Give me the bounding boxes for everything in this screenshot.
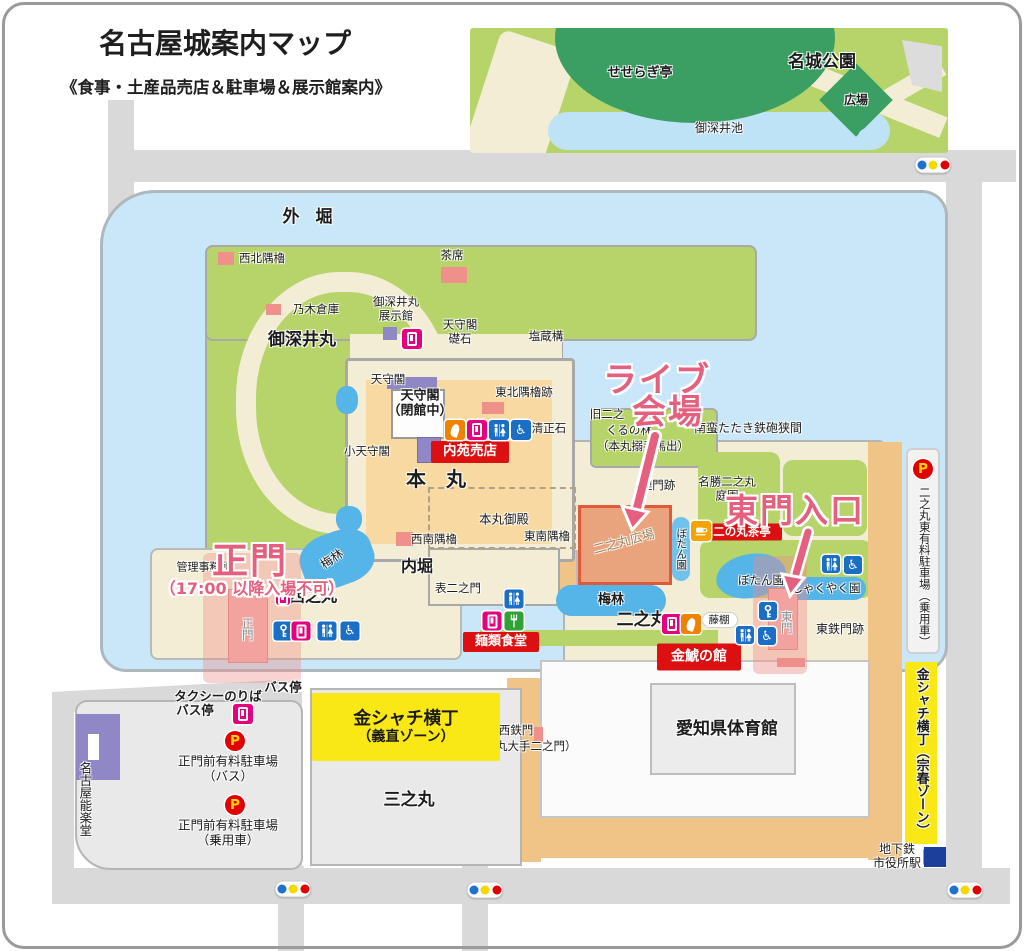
tenshukaku-soseki-label: 天守閣 礎石 [443,318,478,345]
wheelchair-icon: ♿ [511,420,531,440]
restroom-icon [736,626,754,644]
wheelchair-icon: ♿ [758,627,776,645]
botan-en-vertical-label: ぼたん園 [675,528,687,570]
enzogamae-label: 塩蔵構 [529,330,564,344]
main-gate-note-annotation: （17:00 以降入場不可） [160,575,345,599]
parking-icon: P [225,731,245,751]
restroom-icon [489,420,509,440]
naien-baiten-box: 内苑売店 [431,441,509,463]
nagoya-nohgakudo-label: 名古屋能楽堂 [77,762,92,837]
bairin-east-label: 梅林 [598,592,624,607]
live-venue-arrow [608,430,668,538]
east-gate-name-label: 東門 [779,611,793,634]
uchibori-label: 内堀 [401,558,433,577]
park-small-pond [858,128,878,146]
nogi-soko-building [266,304,281,315]
kinshachi-muneharu-label: 金シャチ横丁（宗春ゾーン） [913,668,928,837]
east-inner-road [868,442,902,860]
road-top-horizontal [118,150,1016,182]
nogi-soko-label: 乃木倉庫 [293,303,339,317]
menrui-shokudo-box-text: 麺類食堂 [475,635,527,650]
vending-machine-icon [402,329,422,349]
outer-moat-label: 外 堀 [283,207,338,227]
nohgakudo-notch [88,734,99,760]
menrui-shokudo-box: 麺類食堂 [463,632,539,652]
kiyomasa-ishi-label: 清正石 [532,422,567,436]
main-gate-name-label: 正門 [240,618,254,641]
restroom-icon [318,622,337,641]
ofukemaru-tenjikan-building [383,327,397,340]
road-bottom-vertical-1 [278,866,304,951]
live-venue-annotation-line2: 会場 [632,385,704,434]
kinko-no-yakata-box-text: 金鯱の館 [671,649,727,665]
kinshachi-yoshinao-box-text: （義直ゾーン） [357,729,454,745]
park-forest-circle [555,28,835,123]
higashi-tetsumon-ato-label: 東鉄門跡 [816,622,864,636]
vending-machine-icon [483,612,502,631]
east-gate-annotation: 東門入口 [725,484,865,532]
subway-station-icon [924,848,945,867]
bus-stop-2-label: バス停 [264,681,302,696]
east-gate-arrow [770,526,822,604]
wheelchair-icon: ♿ [341,622,360,641]
ofukemaru-label: 御深井丸 [268,330,336,350]
restaurant-icon [505,612,524,631]
tea-house-icon [691,521,711,541]
traffic-light-icon [947,882,984,899]
honmaru-goten-label: 本丸御殿 [479,513,529,528]
coin-locker-icon [274,622,293,641]
tonan-sumiyagura-label: 東南隅櫓 [524,530,570,544]
traffic-light-icon [467,882,504,899]
vending-machine-icon [467,420,487,440]
road-right-vertical [946,150,982,892]
omote-ninomon-label: 表二之門 [435,582,481,596]
honmaru-label: 本 丸 [406,468,466,492]
restroom-icon [822,555,840,573]
chaseki-building [441,267,467,283]
tohoku-sumiyagura-ato-label: 東北隅櫓跡 [495,386,553,400]
meijo-park-label: 名城公園 [788,52,856,72]
kinko-no-yakata-box: 金鯱の館 [657,644,741,671]
chikatetsu-shiyakusho-label: 地下鉄 市役所駅 [873,842,921,870]
ninomaru-label: 二之丸 [617,610,668,630]
pond-small-1 [336,386,358,414]
souvenir-shop-icon [681,614,701,634]
sannomaru-label: 三之丸 [384,790,435,810]
vending-machine-icon [233,704,253,724]
souvenir-shop-icon [445,420,465,440]
tenshukaku-closed-label: 天守閣 （閉館中） [387,389,452,420]
seseragi-tei-label: せせらぎ亭 [607,65,672,80]
kinshachi-yoshinao-box-text: 金シャチ横丁 [354,709,459,729]
fujidana-label: 藤棚 [709,614,730,626]
naien-baiten-box-text: 内苑売店 [443,444,497,460]
traffic-light-icon [275,881,312,898]
ofukei-pond-label: 御深井池 [695,121,743,135]
tohoku-building [482,402,504,414]
restroom-icon [505,590,524,609]
road-bottom-horizontal [52,868,1010,904]
nagoya-castle-map: 名古屋城案内マップ 《食事・土産品売店＆駐車場＆展示館案内》 ライブ 会場 東門… [0,0,1024,951]
hiroba-label: 広場 [844,93,868,107]
parking-icon: P [913,459,933,479]
traffic-light-icon [915,157,952,174]
ninomaru-east-parking-label: 二之丸東有料駐車場（乗用車） [917,487,931,648]
seihoku-sumiyagura-building [218,252,234,265]
road-parking-west [52,692,74,872]
coin-locker-icon [759,602,777,620]
honmaru-se-bastion [428,548,560,606]
tenshukaku-small-label: 天守閣 [371,373,406,387]
vending-machine-icon [662,614,682,634]
kinshachi-yoshinao-box: 金シャチ横丁（義直ゾーン） [312,693,500,761]
nanban-tataki-label: 南蛮たたき鉄砲狭間 [694,421,802,435]
parking-icon: P [225,795,245,815]
seimon-parking-car-label: 正門前有料駐車場 （乗用車） [178,818,278,848]
south-inner-road [530,816,902,858]
vending-machine-icon [292,622,311,641]
page-subtitle: 《食事・土産品売店＆駐車場＆展示館案内》 [6,74,446,98]
wheelchair-icon: ♿ [844,556,862,574]
kyu-ninomaru-label: 旧二之 [590,408,625,422]
ofukemaru-tenjikan-label: 御深井丸 展示館 [373,295,419,322]
seihoku-sumiyagura-label: 西北隅櫓 [239,252,285,266]
seimon-parking-bus-label: 正門前有料駐車場 （バス） [178,754,278,784]
road-bottom-vertical-2 [462,866,488,951]
seinan-sumiyagura-label: 西南隅櫓 [411,533,457,547]
nishi-tetsumon-label: 西鉄門 [499,724,534,738]
kotenshukaku-label: 小天守閣 [344,445,390,459]
chaseki-label: 茶席 [441,249,464,263]
aichi-taiikukan-label: 愛知県体育館 [676,719,778,739]
page-title: 名古屋城案内マップ [60,22,390,62]
bus-stop-1-label: バス停 [176,704,214,719]
